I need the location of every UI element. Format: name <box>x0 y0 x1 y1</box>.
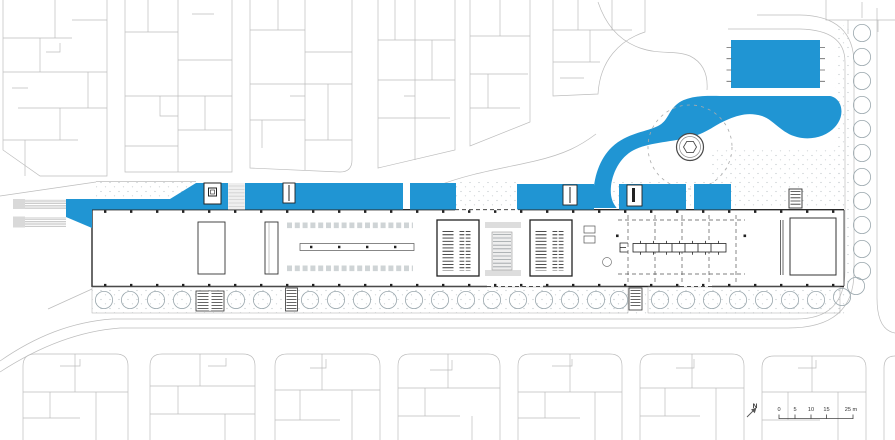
entrance-vestibule <box>563 185 577 205</box>
parcel-lines <box>640 354 744 440</box>
parcel-lines <box>518 354 622 440</box>
canopy-segment <box>517 184 594 210</box>
parcel-lines <box>553 0 632 78</box>
room <box>790 218 836 275</box>
main-building <box>92 208 844 287</box>
scale-tick-label: 15 <box>823 407 829 413</box>
tree-icon <box>853 120 870 137</box>
room <box>265 222 278 274</box>
city-block <box>884 356 895 440</box>
city-block <box>150 354 255 440</box>
stair-vestibule <box>789 189 802 208</box>
scale-bar-line <box>779 415 853 420</box>
pavilion-outer-ring <box>677 134 704 161</box>
scale-tick-label: 5 <box>793 407 796 413</box>
garden-path-curve <box>437 134 596 186</box>
scale-tick-label: 0 <box>777 407 780 413</box>
canopy-segment <box>410 183 456 210</box>
entrance-vestibule <box>204 183 221 204</box>
scale-end-label: 25 m <box>845 407 858 413</box>
column <box>616 235 619 238</box>
parcel-lines <box>398 354 500 440</box>
ramp-hatch <box>25 218 66 227</box>
pool <box>731 40 820 88</box>
parcel-lines <box>762 356 866 440</box>
column <box>744 235 747 238</box>
room <box>198 222 225 274</box>
landing-paving <box>485 222 521 228</box>
canopy-segment <box>694 184 731 210</box>
paving-area <box>455 182 517 210</box>
parcel-lines <box>275 354 380 440</box>
ramp-hatch-bands <box>13 199 66 228</box>
city-block <box>250 0 352 172</box>
scale-tick-label: 10 <box>808 407 814 413</box>
tree-icon <box>853 240 870 257</box>
tree-icon <box>853 48 870 65</box>
city-block <box>553 0 645 96</box>
tree-icon <box>853 144 870 161</box>
site-plan-canvas: N 0 5 10 15 25 m <box>0 0 895 440</box>
tree-icon <box>853 192 870 209</box>
landing-paving <box>485 270 521 276</box>
road-outer-edge <box>877 8 895 333</box>
circular-pavilion <box>677 134 704 161</box>
vestibule-walls <box>204 183 221 204</box>
stair-core-b <box>530 220 572 276</box>
site-edge-detail <box>48 289 92 309</box>
parcel-lines <box>378 0 455 160</box>
strip-stair <box>629 288 642 310</box>
canopy-segment <box>245 183 403 210</box>
parcel-lines <box>250 0 352 170</box>
crosswalk-strip <box>228 183 245 210</box>
long-table <box>633 244 726 253</box>
city-block <box>23 354 128 440</box>
ramp-landing <box>13 199 25 209</box>
paving-area <box>712 150 845 208</box>
tree-icon <box>853 72 870 89</box>
north-indicator: N <box>747 403 758 417</box>
parcel-lines <box>3 0 107 176</box>
tree-icon <box>853 24 870 41</box>
ramp-landing <box>13 217 25 228</box>
parcel-lines <box>125 0 232 172</box>
crosswalk-hatch <box>229 186 245 206</box>
context-blocks-bottom <box>23 354 895 440</box>
ramp-hatch <box>25 200 66 209</box>
door-icon <box>632 188 635 202</box>
city-block <box>275 354 380 440</box>
strip-stair <box>286 288 298 311</box>
city-block <box>762 356 866 440</box>
long-bench <box>300 244 414 251</box>
tree-icon <box>853 262 870 279</box>
entrance-vestibule <box>283 183 295 203</box>
stair-core-a <box>437 220 479 276</box>
city-block <box>378 0 455 168</box>
parcel-lines <box>150 354 255 440</box>
tree-icon <box>853 96 870 113</box>
tree-icon <box>853 168 870 185</box>
vestibule-walls <box>789 189 802 208</box>
parcel-lines <box>470 0 530 108</box>
tree-row-right <box>853 24 870 279</box>
entrance-vestibule <box>627 185 642 206</box>
garden-path-curve <box>598 2 707 90</box>
tree-icon <box>853 216 870 233</box>
scale-bar: 0 5 10 15 25 m <box>777 407 857 419</box>
site-plan-page: N 0 5 10 15 25 m <box>0 0 895 440</box>
parcel-lines <box>23 354 128 440</box>
strip-stair <box>196 291 224 311</box>
city-block <box>398 354 500 440</box>
map-legend: N 0 5 10 15 25 m <box>747 403 858 419</box>
